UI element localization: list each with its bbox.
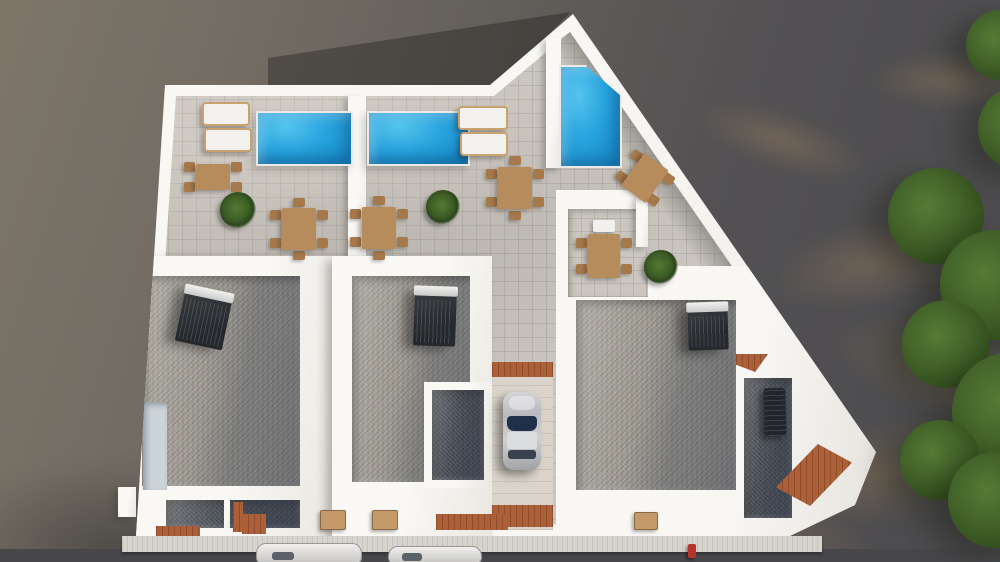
deck-mat	[436, 514, 508, 530]
car-hood	[509, 396, 535, 410]
car-rear-window	[508, 450, 536, 459]
potted-plant	[426, 190, 460, 224]
villa-2-gravel-extension	[432, 390, 484, 480]
car-windshield	[507, 416, 537, 431]
deck-strip	[156, 526, 200, 536]
dining-set	[576, 218, 632, 286]
deck-strip	[242, 514, 266, 534]
aerial-render-scene	[0, 0, 1000, 562]
dining-set	[350, 196, 408, 260]
pool-1	[256, 111, 353, 166]
lightwell	[143, 402, 167, 490]
pool-2	[367, 111, 470, 166]
sun-lounger	[460, 132, 508, 156]
sun-lounger	[204, 128, 252, 152]
dining-set	[270, 198, 328, 260]
pool3-side-wall	[546, 38, 561, 168]
solar-heater-unit	[763, 388, 787, 437]
deck-post	[233, 502, 243, 532]
dining-set	[486, 156, 544, 220]
sun-lounger	[458, 106, 508, 130]
potted-plant	[644, 250, 678, 284]
fire-hydrant	[688, 544, 696, 558]
entry-bench	[634, 512, 658, 530]
ac-unit-icon	[413, 287, 457, 346]
car-roof	[507, 432, 537, 449]
sun-lounger	[202, 102, 250, 126]
entry-bench	[320, 510, 346, 530]
potted-plant	[220, 192, 256, 228]
street-car	[388, 546, 482, 562]
driveway-car	[503, 392, 541, 470]
street-car	[256, 543, 362, 562]
exterior-step	[118, 487, 136, 517]
pool-3	[559, 65, 622, 168]
ac-unit-icon	[687, 303, 729, 350]
driveway-deck-strip	[492, 362, 553, 377]
entry-bench	[372, 510, 398, 530]
patio-divider	[224, 500, 230, 528]
